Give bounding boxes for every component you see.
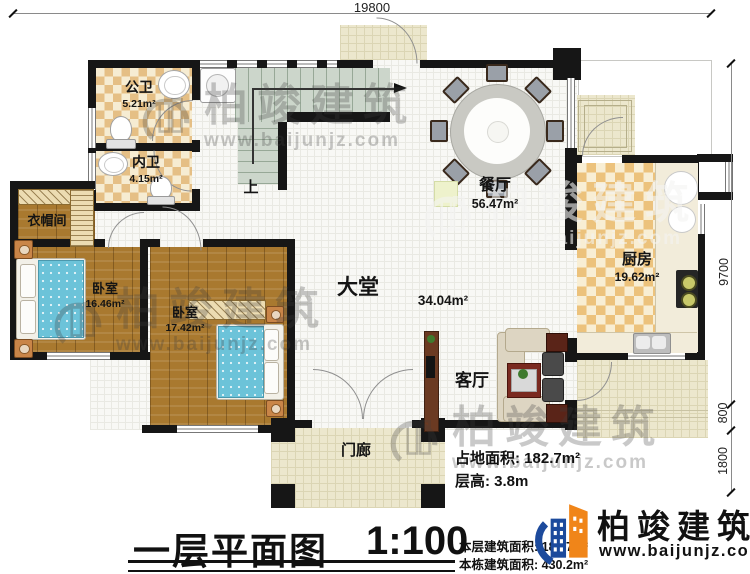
stove-burner-icon (681, 292, 697, 308)
brand-logo: 柏竣建筑 www.baijunjz.com (535, 492, 745, 570)
armchair-icon (542, 378, 564, 402)
plant-icon (427, 335, 435, 343)
pillow-icon (20, 300, 36, 334)
dining-chair-icon (486, 64, 508, 82)
room-label-kitchen: 厨房19.62m² (615, 252, 660, 285)
stairs-lower-run (238, 122, 278, 184)
nightstand-icon (266, 306, 284, 323)
wall (88, 60, 197, 68)
stair-direction-label: 上 (243, 180, 258, 197)
wall (697, 234, 705, 360)
wall (192, 140, 200, 152)
dining-chair-icon (430, 120, 448, 142)
dimension-right-value: 800 (716, 403, 730, 424)
porch-pillar (271, 418, 295, 442)
wardrobe-icon (18, 189, 78, 205)
window (47, 352, 110, 360)
wall (622, 155, 705, 163)
wall (278, 122, 287, 190)
window (177, 425, 258, 433)
wall (203, 239, 295, 247)
stove-burner-icon (681, 275, 697, 291)
wall (287, 239, 295, 433)
dimension-right-value: 1800 (716, 447, 730, 475)
room-label-public-bath: 公卫5.21m² (122, 80, 155, 111)
dining-chair-icon (546, 120, 564, 142)
stair-guide-line (252, 88, 398, 90)
wall (287, 60, 297, 68)
floor-plan-canvas: 柏竣建筑www.baijunjz.com 柏竣建筑www.baijunjz.co… (0, 0, 750, 574)
dimension-tick (706, 9, 715, 18)
stair-guide-line (252, 88, 254, 164)
wardrobe-icon (70, 189, 94, 247)
wall (565, 352, 628, 360)
wall (140, 247, 148, 352)
blanket-icon (38, 260, 84, 338)
porch-pillar (271, 484, 295, 508)
wall (577, 155, 582, 163)
wall (565, 60, 577, 78)
porch-pillar (421, 484, 445, 508)
kitchen-sink-icon (668, 206, 696, 233)
room-label-living: 客厅 (455, 372, 489, 391)
sink-icon (158, 70, 190, 99)
stair-arrow-icon (394, 83, 407, 93)
window (88, 108, 96, 148)
pillow-icon (264, 329, 279, 361)
room-label-inner-bath: 内卫4.15m² (129, 155, 162, 186)
page-title: 一层平面图 (133, 521, 328, 574)
pillow-icon (20, 264, 36, 298)
armchair-icon (542, 352, 564, 376)
room-label-dining: 餐厅56.47m² (472, 177, 519, 212)
wall (565, 148, 577, 250)
brand-website: www.baijunjz.com (599, 542, 750, 561)
title-underline (128, 570, 455, 572)
corner-table-icon (546, 404, 568, 423)
room-label-bedroom1: 卧室16.46m² (85, 282, 124, 311)
drawing-scale: 1:100 (366, 519, 468, 564)
side-table-icon (434, 181, 458, 207)
toilet-tank-icon (147, 196, 175, 205)
dining-table-center-icon (487, 121, 509, 143)
wall (192, 60, 200, 100)
brand-name: 柏竣建筑 (597, 500, 750, 548)
wall (295, 420, 312, 428)
window (567, 78, 575, 148)
toilet-tank-icon (106, 139, 136, 149)
washing-machine-drum-icon (206, 74, 229, 97)
sink-basin-icon (636, 336, 650, 349)
bay-window (699, 162, 725, 192)
wall (110, 352, 150, 360)
room-label-porch: 门廊 (341, 443, 371, 460)
wall (88, 60, 96, 108)
tv-cabinet-icon (424, 331, 439, 432)
wall (337, 60, 373, 68)
porch-floor (271, 428, 445, 508)
plant-icon (518, 369, 528, 379)
kitchen-sink-icon (664, 171, 698, 205)
wall (317, 60, 327, 68)
brand-logo-icon (535, 494, 593, 570)
room-area-hall: 34.04m² (418, 294, 468, 309)
nightstand-icon (266, 400, 284, 417)
window (697, 204, 705, 234)
wall (142, 425, 177, 433)
sofa-icon (505, 328, 550, 352)
nightstand-icon (14, 240, 33, 259)
wall (88, 203, 200, 211)
wall (227, 60, 237, 68)
title-underline (128, 560, 455, 563)
dimension-right-value: 9700 (717, 258, 731, 286)
room-label-hall: 大堂 (337, 276, 379, 299)
window (197, 60, 337, 68)
pillow-icon (264, 362, 279, 394)
wall (685, 352, 705, 360)
wall (257, 60, 267, 68)
room-label-cloakroom: 衣帽间 (27, 214, 66, 228)
dimension-top-value: 19800 (354, 0, 390, 15)
site-area-note: 占地面积: 182.7m² (455, 447, 580, 468)
wall (10, 181, 95, 189)
room-label-bedroom2: 卧室17.42m² (165, 306, 204, 335)
tv-icon (426, 356, 435, 378)
floor-height-note: 层高: 3.8m (455, 470, 528, 491)
corner-table-icon (546, 333, 568, 352)
blanket-icon (218, 326, 264, 398)
wall (287, 112, 390, 122)
terrace-step-line (577, 410, 708, 411)
nightstand-icon (14, 339, 33, 358)
terrace-step-line (577, 417, 708, 418)
sink-basin-icon (652, 336, 666, 349)
sink-icon (98, 152, 128, 176)
